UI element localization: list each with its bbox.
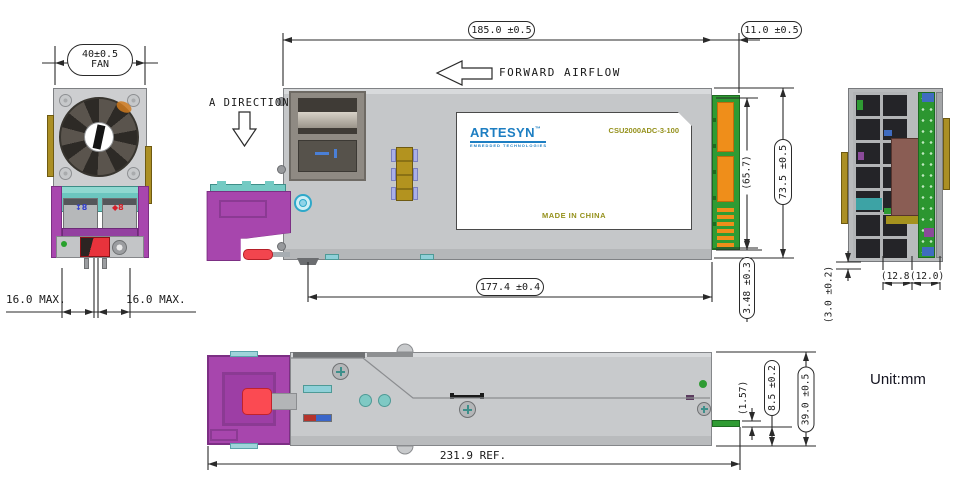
dim-3-48: 3.48 ±0.3 xyxy=(739,257,755,319)
dim-fan: 40±0.5 FAN xyxy=(67,44,133,76)
direction-label: A DIRECTION xyxy=(209,97,290,109)
dim-185: 185.0 ±0.5 xyxy=(468,21,535,39)
dim-11: 11.0 ±0.5 xyxy=(741,21,802,39)
airflow-label: FORWARD AIRFLOW xyxy=(499,66,621,79)
dim-fan-sub: FAN xyxy=(91,60,109,71)
unit-label: Unit:mm xyxy=(870,371,926,388)
dim-16-left: 16.0 MAX. xyxy=(6,293,66,306)
drawing-canvas: ↕8 ◆8 ARTESYN™ xyxy=(0,0,958,482)
dim-12-0: (12.0) xyxy=(910,270,944,282)
dim-65-7: (65.7) xyxy=(741,151,754,195)
dim-231-9: 231.9 REF. xyxy=(428,448,518,462)
dim-39-0: 39.0 ±0.5 xyxy=(798,367,815,433)
dim-1-57: (1.57) xyxy=(737,381,749,415)
dim-3-0: (3.0 ±0.2) xyxy=(823,266,836,324)
dim-16-right: 16.0 MAX. xyxy=(126,293,186,306)
direction-arrow-icon xyxy=(233,112,256,146)
dim-73-5: 73.5 ±0.5 xyxy=(774,139,792,205)
airflow-arrow-icon xyxy=(437,61,492,85)
dim-8-5: 8.5 ±0.2 xyxy=(764,360,780,416)
dim-177-4: 177.4 ±0.4 xyxy=(476,278,544,296)
